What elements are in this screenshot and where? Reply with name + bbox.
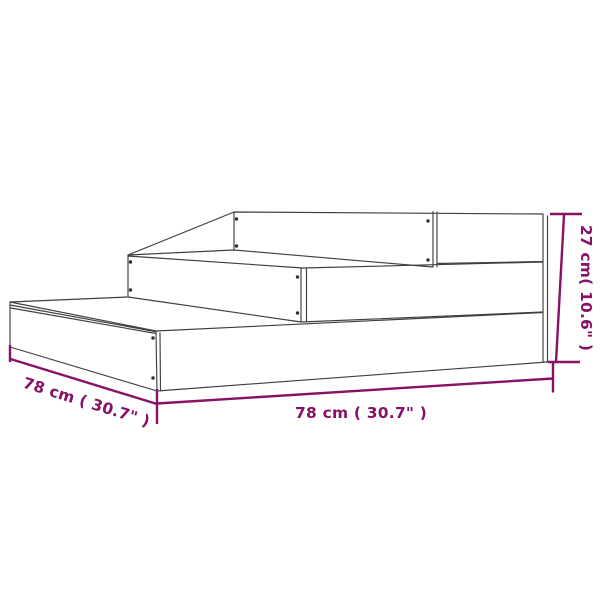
top-tier-outline: [128, 212, 548, 363]
screw-dot: [151, 336, 154, 339]
planter-drawing: [10, 212, 548, 392]
screw-dot: [129, 288, 132, 291]
screw-dot: [296, 275, 299, 278]
middle-tier-outline: [10, 255, 543, 322]
height-dimension-line: [548, 214, 582, 362]
screw-dot: [151, 376, 154, 379]
width-dimension-line: [157, 362, 553, 404]
diagram-canvas: 78 cm ( 30.7" ) 78 cm ( 30.7" ) 27 cm( 1…: [0, 0, 600, 600]
screw-dot: [235, 217, 238, 220]
screw-dot: [426, 258, 429, 261]
screw-dot: [296, 311, 299, 314]
screw-dot: [426, 219, 429, 222]
screw-dots: [129, 217, 430, 379]
width-dimension-label: 78 cm ( 30.7" ): [295, 404, 427, 422]
height-dimension-label: 27 cm( 10.6" ): [577, 225, 595, 351]
screw-dot: [235, 244, 238, 247]
screw-dot: [129, 260, 132, 263]
planter-dimension-diagram: 78 cm ( 30.7" ) 78 cm ( 30.7" ) 27 cm( 1…: [0, 0, 600, 600]
